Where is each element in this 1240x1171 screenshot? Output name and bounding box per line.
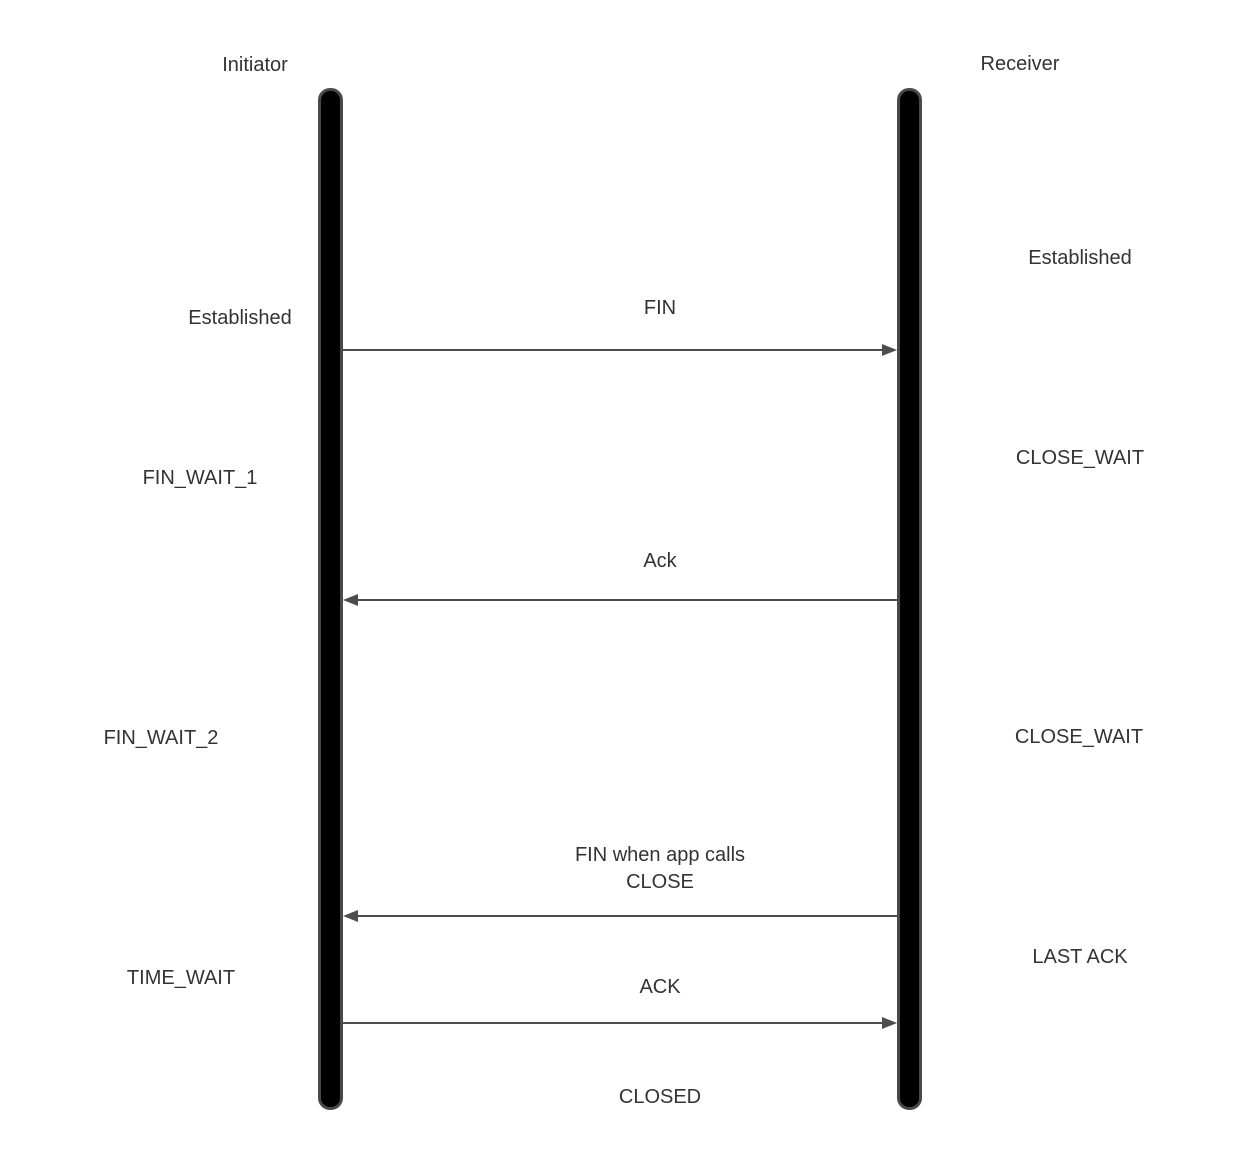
state-initiator-fin-wait-2: FIN_WAIT_2: [61, 726, 261, 750]
message-ack2-label: ACK: [460, 975, 860, 999]
message-ack2-line: [343, 1022, 883, 1024]
state-initiator-time-wait: TIME_WAIT: [81, 966, 281, 990]
state-receiver-last-ack: LAST ACK: [980, 945, 1180, 969]
lifeline-initiator-bar: [318, 88, 343, 1110]
state-receiver-established: Established: [980, 246, 1180, 270]
state-initiator-fin-wait-1: FIN_WAIT_1: [100, 466, 300, 490]
arrow-head-right-icon: [882, 344, 897, 356]
state-receiver-close-wait-1: CLOSE_WAIT: [980, 446, 1180, 470]
message-ack1-label: Ack: [460, 549, 860, 573]
message-fin-close-line: [357, 915, 897, 917]
arrow-head-left-icon: [343, 594, 358, 606]
message-fin-label: FIN: [460, 296, 860, 320]
sequence-diagram: Initiator Receiver FIN Ack FIN when app …: [0, 0, 1240, 1171]
arrow-head-right-icon: [882, 1017, 897, 1029]
message-fin-close-label-line1: FIN when app calls: [460, 843, 860, 867]
message-ack1-line: [357, 599, 897, 601]
state-initiator-established: Established: [140, 306, 340, 330]
message-fin-line: [343, 349, 883, 351]
lifeline-receiver-bar: [897, 88, 922, 1110]
state-receiver-close-wait-2: CLOSE_WAIT: [979, 725, 1179, 749]
state-final-closed: CLOSED: [560, 1085, 760, 1109]
arrow-head-left-icon: [343, 910, 358, 922]
lifeline-receiver-label: Receiver: [920, 52, 1120, 76]
message-fin-close-label-line2: CLOSE: [460, 870, 860, 894]
lifeline-initiator-label: Initiator: [155, 53, 355, 77]
